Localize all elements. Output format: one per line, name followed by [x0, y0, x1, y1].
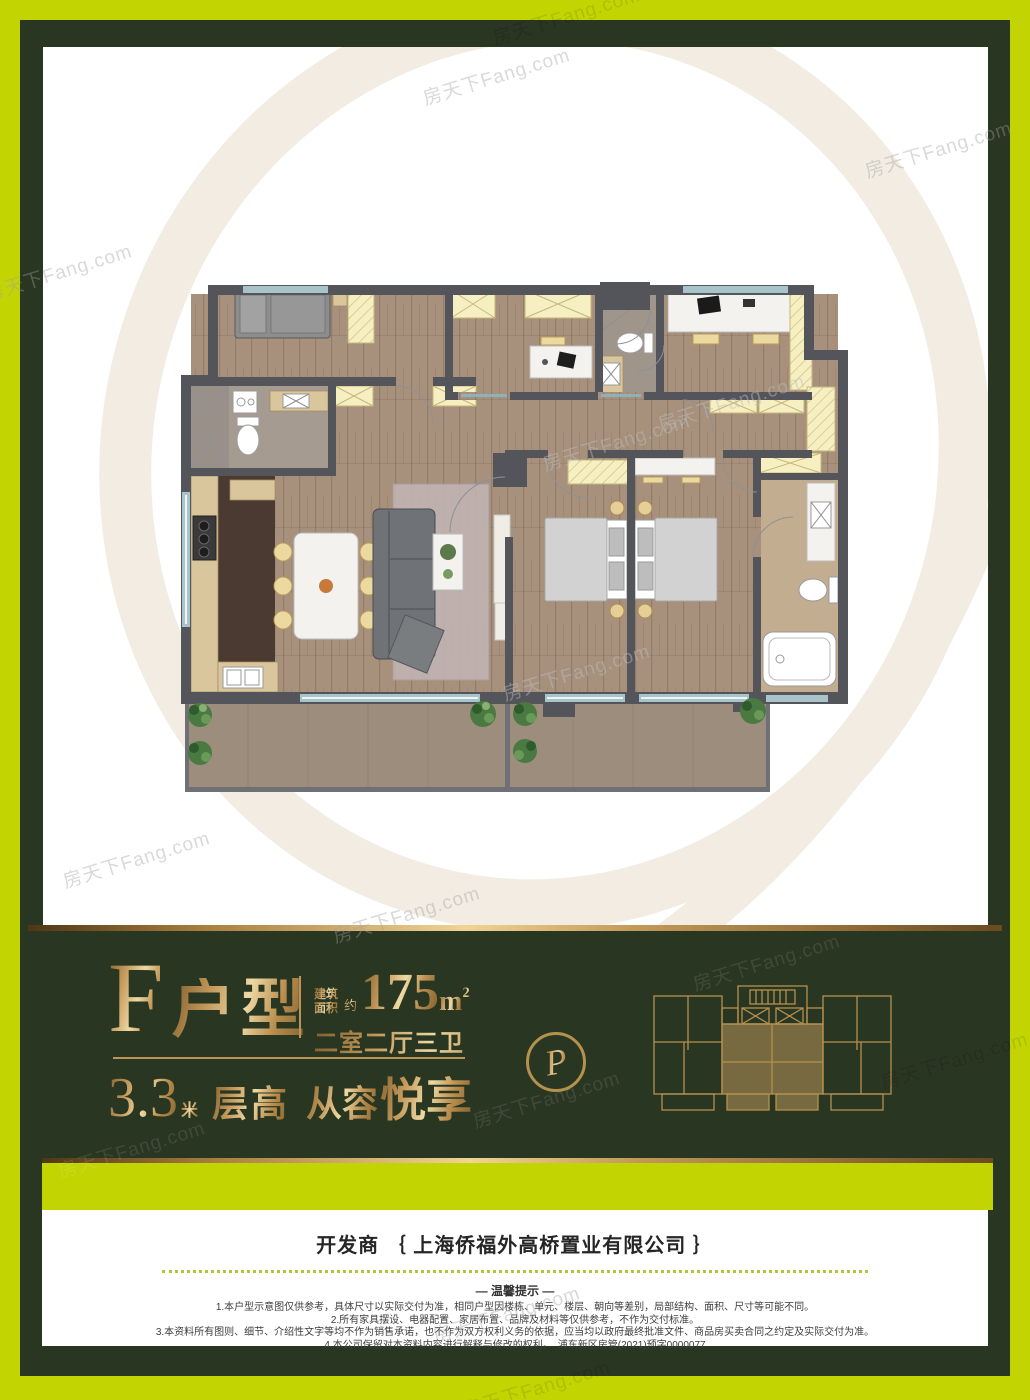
- slogan: 从容 悦享: [306, 1064, 472, 1130]
- height-unit: 米: [181, 1096, 198, 1121]
- floor-plan-panel: [43, 47, 988, 925]
- developer-line: 开发商 ｛ 上海侨福外高桥置业有限公司 ｝: [42, 1229, 988, 1258]
- shower-floor: [191, 386, 229, 468]
- height-value: 3.3: [108, 1070, 178, 1126]
- horizontal-gold-line: [113, 1057, 465, 1059]
- vertical-divider: [299, 976, 301, 1038]
- brand-emblem: P: [526, 1032, 586, 1092]
- area-unit: m: [439, 989, 462, 1014]
- balcony-left-floor: [189, 704, 505, 787]
- area-block: 建筑 面积 约 175 m 2 二室二厅三卫: [314, 972, 544, 1058]
- apartment-plan: [181, 282, 848, 792]
- area-unit-sup: 2: [462, 986, 470, 1001]
- unit-label: 户型: [172, 978, 310, 1042]
- area-prefix-line2: 面积: [314, 1001, 338, 1015]
- unit-letter: F: [108, 948, 164, 1048]
- key-plan: [650, 980, 895, 1128]
- tip-line-1: 1.本户型示意图仅供参考，具体尺寸以实际交付为准，相同户型因楼栋、单元、楼层、朝…: [42, 1302, 988, 1315]
- info-strip: 开发商 ｛ 上海侨福外高桥置业有限公司 ｝ — 温馨提示 — 1.本户型示意图仅…: [42, 1210, 988, 1346]
- tips-list: 1.本户型示意图仅供参考，具体尺寸以实际交付为准，相同户型因楼栋、单元、楼层、朝…: [42, 1302, 988, 1352]
- layout-text: 二室二厅三卫: [314, 1023, 544, 1058]
- slogan-light: 从容: [306, 1075, 378, 1127]
- emblem-letter: P: [542, 1042, 570, 1081]
- lime-band: [42, 1163, 993, 1210]
- slogan-strong: 悦享: [380, 1064, 472, 1130]
- area-prefix-line1: 建筑: [314, 987, 338, 1001]
- unit-title: F 户型: [108, 948, 310, 1048]
- key-plan-highlighted-unit: [722, 1024, 823, 1110]
- height-slogan-row: 3.3 米 层高 从容 悦享: [108, 1064, 472, 1130]
- area-value: 175: [361, 972, 439, 1015]
- tips-title: — 温馨提示 —: [42, 1282, 988, 1299]
- tip-line-3: 3.本资料所有图则、细节、介绍性文字等均不作为销售承诺，也不作为双方权利义务的依…: [42, 1327, 988, 1340]
- poster: F 户型 建筑 面积 约 175 m 2 二室二厅三卫 3.3 米 层高 从容 …: [0, 0, 1030, 1400]
- tip-line-2: 2.所有家具摆设、电器配置、家居布置、品牌及材料等仅供参考，不作为交付标准。: [42, 1315, 988, 1328]
- height-label: 层高: [212, 1075, 290, 1127]
- dotted-separator: [162, 1270, 868, 1273]
- floor-plan: [43, 47, 988, 925]
- bedroom-north-furniture: [235, 290, 374, 343]
- area-approx: 约: [344, 995, 357, 1014]
- area-prefix: 建筑 面积: [314, 987, 338, 1015]
- gold-divider-top: [28, 925, 1002, 931]
- tip-line-4: 4.本公司保留对本资料内容进行解释与修改的权利。 浦东新区房管(2021)预字0…: [42, 1340, 988, 1353]
- wood-floor: [191, 294, 838, 694]
